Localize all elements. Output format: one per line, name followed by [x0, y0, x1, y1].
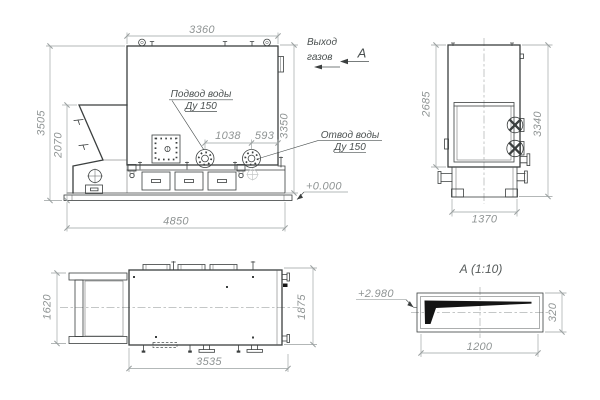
- lifting-lug-icon: [139, 39, 146, 46]
- boiler-drawing: 3360 3505 2070 3350 1038 593 4850 Подвод…: [0, 0, 600, 400]
- valve-handwheel-lower: [507, 140, 524, 156]
- dim-base-width: 1370: [472, 214, 498, 226]
- plan-grate-assembly: [69, 273, 127, 344]
- dim-grate-width: 1620: [42, 294, 54, 320]
- hopper-handle: [74, 120, 83, 125]
- dim-base-length: 4850: [163, 216, 189, 228]
- level-duct-text: +2.980: [358, 288, 394, 300]
- side-fuel-hopper: [73, 105, 127, 194]
- dim-top-width: 3360: [189, 24, 215, 36]
- dim-overall-height: 3505: [36, 110, 48, 136]
- dim-nozzle-edge: 593: [255, 130, 275, 142]
- valve-handwheel-upper: [507, 117, 524, 133]
- dim-body-height: 3350: [279, 113, 291, 139]
- side-base-frame: [64, 193, 292, 201]
- front-right-base-stub: [517, 171, 527, 183]
- dim-front-overall-height: 3340: [532, 111, 544, 137]
- view-a-letter: А: [357, 46, 367, 61]
- side-inspection-door: [152, 135, 180, 163]
- water-supply-label-line2: Ду 150: [184, 101, 217, 112]
- ash-door: [142, 172, 170, 190]
- water-supply-label-line1: Подвод воды: [171, 89, 232, 100]
- side-view: 3360 3505 2070 3350 1038 593 4850 Подвод…: [36, 24, 383, 232]
- dim-upper-height: 2685: [421, 91, 433, 118]
- lifting-lug-icon: [264, 39, 271, 46]
- technical-drawing-sheet: 3360 3505 2070 3350 1038 593 4850 Подвод…: [0, 0, 600, 400]
- support-foot: [128, 165, 136, 178]
- view-direction-arrow-icon: [340, 59, 348, 64]
- bottom-flange: [247, 350, 263, 353]
- support-foot: [237, 165, 245, 178]
- label-water-return: Отвод воды Ду 150: [257, 130, 382, 159]
- gas-outlet-label-line1: Выход: [307, 37, 337, 48]
- dim-duct-length: 1200: [467, 341, 493, 353]
- ash-door: [208, 172, 236, 190]
- gas-flow-arrow-icon: [314, 65, 322, 70]
- dim-body-length: 3535: [196, 356, 222, 368]
- hopper-handle: [79, 145, 88, 150]
- plan-top-covers: [143, 262, 255, 271]
- level-arrow-icon: [297, 194, 303, 200]
- level-zero-text: +0.000: [306, 181, 342, 193]
- front-dimensions: 2685 3340 1370: [421, 45, 553, 226]
- dim-plan-overall-width: 1875: [296, 294, 308, 320]
- level-mark-duct: +2.980: [356, 288, 417, 307]
- detail-a-title: А (1:10): [459, 262, 503, 276]
- dim-duct-height: 320: [547, 302, 559, 322]
- water-return-label-line2: Ду 150: [333, 142, 366, 153]
- gas-outlet-label-line2: газов: [307, 52, 332, 63]
- grate-mesh: [85, 281, 123, 336]
- level-mark-zero: +0.000: [297, 181, 348, 200]
- detail-a-view: А (1:10) +2.980 1200 320: [356, 262, 567, 357]
- plan-bottom-fittings: [142, 343, 263, 353]
- view-a-marker: А: [340, 46, 369, 65]
- bottom-flange: [199, 350, 215, 353]
- front-base: [438, 167, 527, 197]
- dim-hopper-height: 2070: [53, 132, 65, 159]
- front-door-panel: [445, 103, 515, 163]
- leader-line: [257, 141, 318, 159]
- water-return-label-line1: Отвод воды: [321, 130, 380, 141]
- side-lower-band: [127, 157, 285, 193]
- ash-door: [175, 172, 203, 190]
- dim-nozzle-spacing: 1038: [215, 130, 241, 142]
- hopper-hatch: [86, 185, 103, 194]
- label-gas-outlet: Выход газов: [307, 37, 340, 69]
- front-left-pipe-stub: [438, 172, 452, 184]
- weld-mark-icon: [283, 284, 288, 288]
- front-right-pipe-stub: [520, 154, 530, 166]
- plan-view: 1620 1875 3535: [42, 262, 318, 373]
- front-view: 2685 3340 1370: [421, 38, 553, 226]
